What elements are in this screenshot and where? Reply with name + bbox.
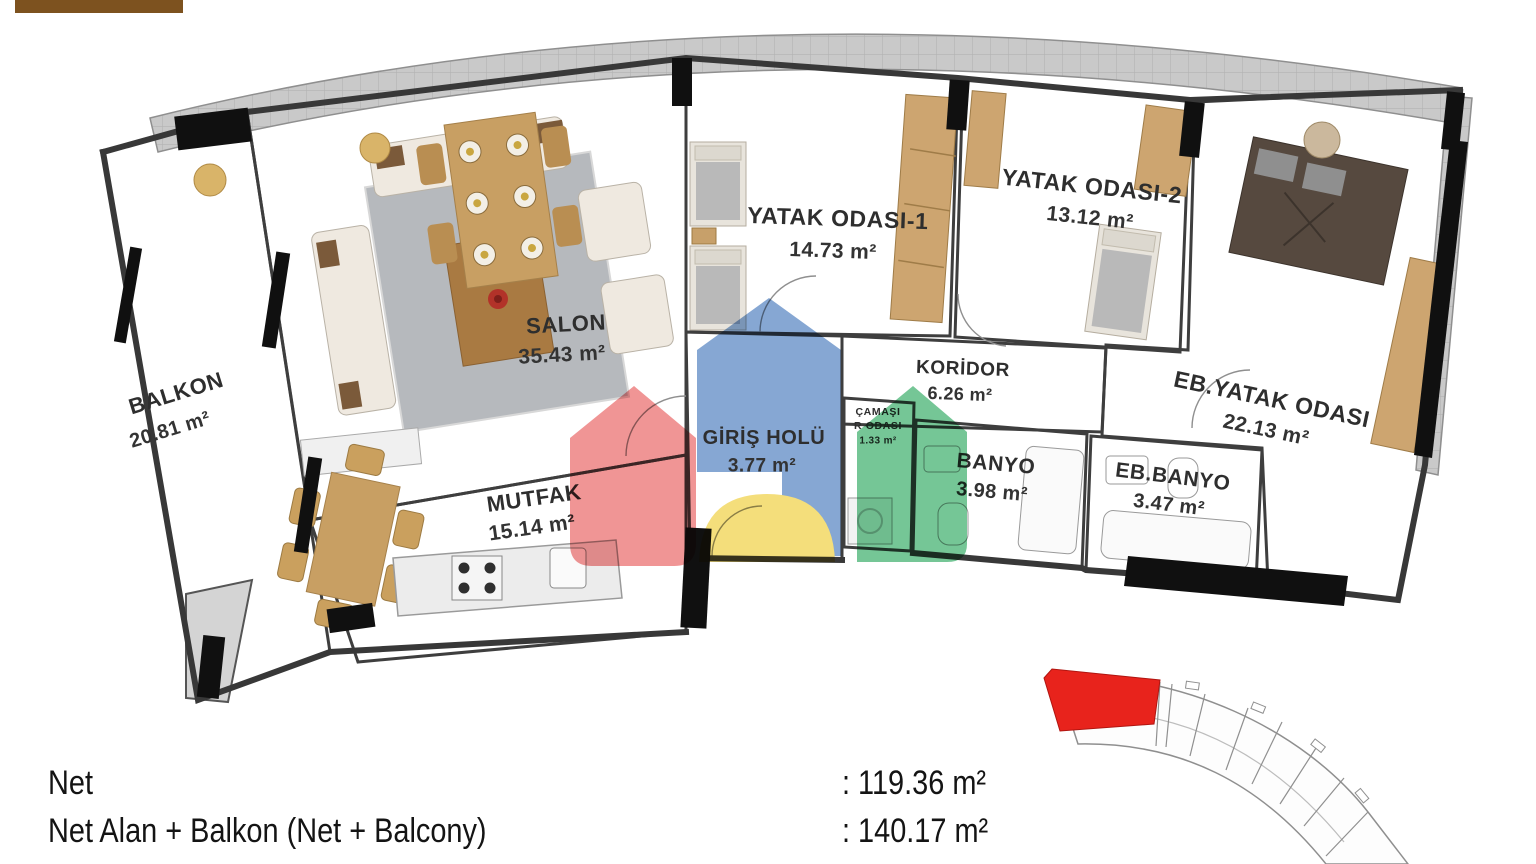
label-banyo-name: BANYO: [956, 449, 1037, 479]
single-bed: [690, 246, 746, 330]
floor-plan-drawing: BALKON 20.81 m² SALON 35.43 m² MUTFAK 15…: [0, 0, 1536, 864]
label-giris-area: 3.77 m²: [728, 456, 796, 477]
salon-furniture: [298, 104, 677, 432]
label-yatak1-area: 14.73 m²: [789, 238, 877, 264]
summary-net-balkon-value: : 140.17 m²: [842, 812, 988, 851]
armchair: [1304, 122, 1340, 158]
label-salon-area: 35.43 m²: [518, 341, 606, 369]
single-bed: [690, 142, 746, 226]
key-plan-highlight-unit: [1044, 669, 1160, 731]
double-bed: [1229, 137, 1408, 285]
label-yatak2-area: 13.12 m²: [1045, 202, 1134, 234]
label-yatak1-name: YATAK ODASI-1: [747, 202, 929, 234]
balcony-table: [194, 164, 226, 196]
watermark-house-red: [570, 386, 696, 566]
single-bed: [1085, 224, 1161, 340]
stove: [452, 556, 502, 600]
label-koridor-name: KORİDOR: [916, 357, 1011, 381]
key-plan: [1044, 669, 1408, 864]
closet: [964, 91, 1006, 189]
label-mutfak-area: 15.14 m²: [487, 511, 577, 546]
summary-net-balkon-label: Net Alan + Balkon (Net + Balcony): [48, 812, 487, 851]
label-giris-name: GİRİŞ HOLÜ: [703, 426, 826, 449]
label-koridor-area: 6.26 m²: [927, 383, 993, 405]
nightstand: [692, 228, 716, 244]
side-table: [360, 133, 390, 163]
summary-net-label: Net: [48, 764, 93, 803]
summary-net-value: : 119.36 m²: [842, 764, 986, 803]
floor-plan-page: BALKON 20.81 m² SALON 35.43 m² MUTFAK 15…: [0, 0, 1536, 864]
label-salon-name: SALON: [525, 309, 606, 338]
